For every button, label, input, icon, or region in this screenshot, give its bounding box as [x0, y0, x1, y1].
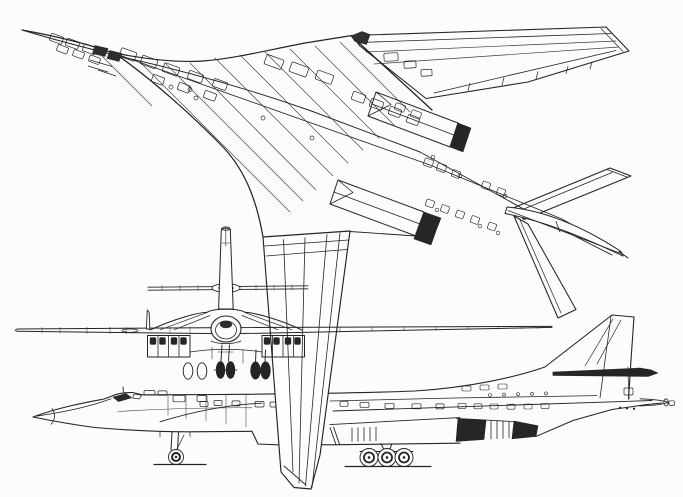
detail-c — [626, 407, 628, 409]
sv-antenna — [123, 387, 124, 393]
detail-c — [478, 224, 482, 228]
detail-r — [410, 110, 422, 120]
detail-r — [162, 63, 180, 77]
detail-l — [229, 345, 230, 361]
detail-r — [197, 396, 207, 402]
tv-wing-swept — [263, 231, 350, 489]
fv-main-wheel — [251, 362, 261, 379]
sv-nozzle-aft — [512, 421, 538, 439]
detail-c — [403, 456, 405, 458]
detail-r — [255, 401, 264, 407]
side-view — [33, 315, 675, 467]
detail-r — [394, 103, 406, 113]
detail-r — [425, 199, 435, 208]
detail-l — [98, 70, 116, 76]
sv-nozzle-front — [456, 419, 486, 442]
detail-c — [503, 393, 506, 396]
detail-l — [160, 313, 207, 330]
detail-r — [487, 222, 497, 231]
detail-e — [122, 329, 138, 332]
detail-r — [285, 338, 291, 345]
outline-path — [15, 329, 17, 331]
detail-r — [160, 338, 166, 345]
sv-rear-belly — [536, 403, 662, 436]
outline-path — [118, 408, 252, 412]
detail-c — [386, 456, 388, 458]
detail-r — [360, 402, 369, 407]
detail-l — [372, 104, 454, 135]
detail-r — [171, 338, 177, 345]
detail-c — [431, 155, 435, 159]
detail-l — [502, 78, 504, 86]
detail-l — [265, 350, 266, 362]
outline-path — [360, 34, 611, 43]
detail-r — [462, 386, 471, 391]
detail-r — [315, 70, 334, 85]
detail-l — [536, 72, 538, 80]
fv-port-wheel — [183, 363, 193, 379]
sv-intake-lip — [330, 427, 340, 445]
detail-l — [221, 345, 222, 361]
detail-r — [274, 338, 280, 345]
technical-drawing — [0, 0, 683, 497]
blueprint-page — [0, 0, 683, 497]
detail-l — [176, 435, 184, 451]
sv-fin — [545, 315, 634, 399]
detail-r — [406, 114, 420, 126]
detail-r — [289, 62, 309, 78]
detail-r — [385, 403, 394, 408]
sv-canopy-frame — [133, 394, 142, 399]
detail-r — [369, 98, 384, 110]
fv-main-wheel — [261, 362, 271, 379]
detail-l — [597, 320, 621, 364]
detail-l — [290, 49, 379, 138]
detail-r — [203, 90, 217, 101]
detail-l — [256, 350, 257, 362]
detail-c — [531, 392, 534, 395]
detail-c — [633, 408, 635, 410]
outline-path — [368, 92, 391, 116]
detail-l — [171, 432, 172, 450]
detail-r — [173, 395, 185, 401]
outline-path — [330, 396, 597, 401]
sv-wing-fairing — [160, 403, 262, 422]
detail-c — [619, 407, 621, 409]
detail-r — [264, 54, 284, 70]
outline-path — [374, 47, 619, 64]
detail-l — [520, 220, 561, 313]
detail-r — [440, 204, 450, 213]
detail-r — [388, 106, 402, 118]
outline-path — [366, 41, 616, 52]
detail-l — [265, 52, 363, 150]
detail-l — [240, 55, 348, 163]
detail-c — [489, 394, 492, 397]
top-view — [22, 27, 631, 489]
detail-c — [496, 231, 500, 235]
detail-r — [264, 338, 270, 345]
tv-cockpit-glass — [107, 51, 122, 62]
detail-l — [88, 66, 108, 72]
outline-path — [190, 349, 262, 352]
detail-l — [190, 63, 316, 190]
detail-r — [490, 404, 498, 409]
detail-r — [214, 401, 222, 406]
sv-tailplane — [553, 368, 658, 376]
detail-c — [435, 208, 439, 212]
detail-r — [200, 401, 208, 406]
detail-c — [517, 393, 520, 396]
tv-pivot-fairing — [351, 32, 370, 45]
sv-rudder — [600, 317, 611, 399]
fv-port-wheel — [197, 363, 207, 379]
fv-swept-tip-fence — [146, 310, 150, 329]
detail-c — [368, 456, 370, 458]
detail-r — [340, 401, 348, 406]
outline-path — [330, 180, 353, 204]
detail-r — [150, 338, 156, 345]
outline-path — [434, 51, 616, 94]
detail-r — [436, 404, 444, 409]
detail-r — [421, 69, 432, 76]
detail-l — [468, 83, 470, 91]
detail-r — [181, 338, 187, 345]
detail-r — [455, 210, 465, 219]
detail-r — [470, 215, 480, 224]
detail-l — [330, 418, 460, 425]
tv-cockpit-glass — [93, 46, 109, 57]
outline-path — [333, 401, 652, 412]
detail-l — [165, 63, 303, 201]
detail-c — [169, 85, 173, 89]
detail-r — [480, 385, 489, 390]
detail-c — [194, 96, 198, 100]
detail-c — [310, 136, 314, 140]
detail-c — [545, 392, 548, 395]
sv-nose-chine — [36, 399, 111, 416]
tv-starboard-edge — [22, 30, 352, 61]
detail-r — [384, 53, 398, 62]
detail-r — [295, 338, 301, 345]
detail-r — [351, 91, 366, 103]
detail-r — [669, 401, 675, 406]
detail-l — [334, 192, 420, 224]
sv-lower-nose — [33, 417, 252, 432]
detail-l — [519, 173, 612, 212]
detail-c — [175, 456, 177, 458]
detail-r — [458, 403, 466, 408]
detail-c — [261, 116, 265, 120]
detail-r — [498, 384, 507, 389]
detail-e — [220, 321, 232, 328]
detail-l — [90, 60, 112, 67]
tv-port-leading-edge — [118, 56, 263, 238]
